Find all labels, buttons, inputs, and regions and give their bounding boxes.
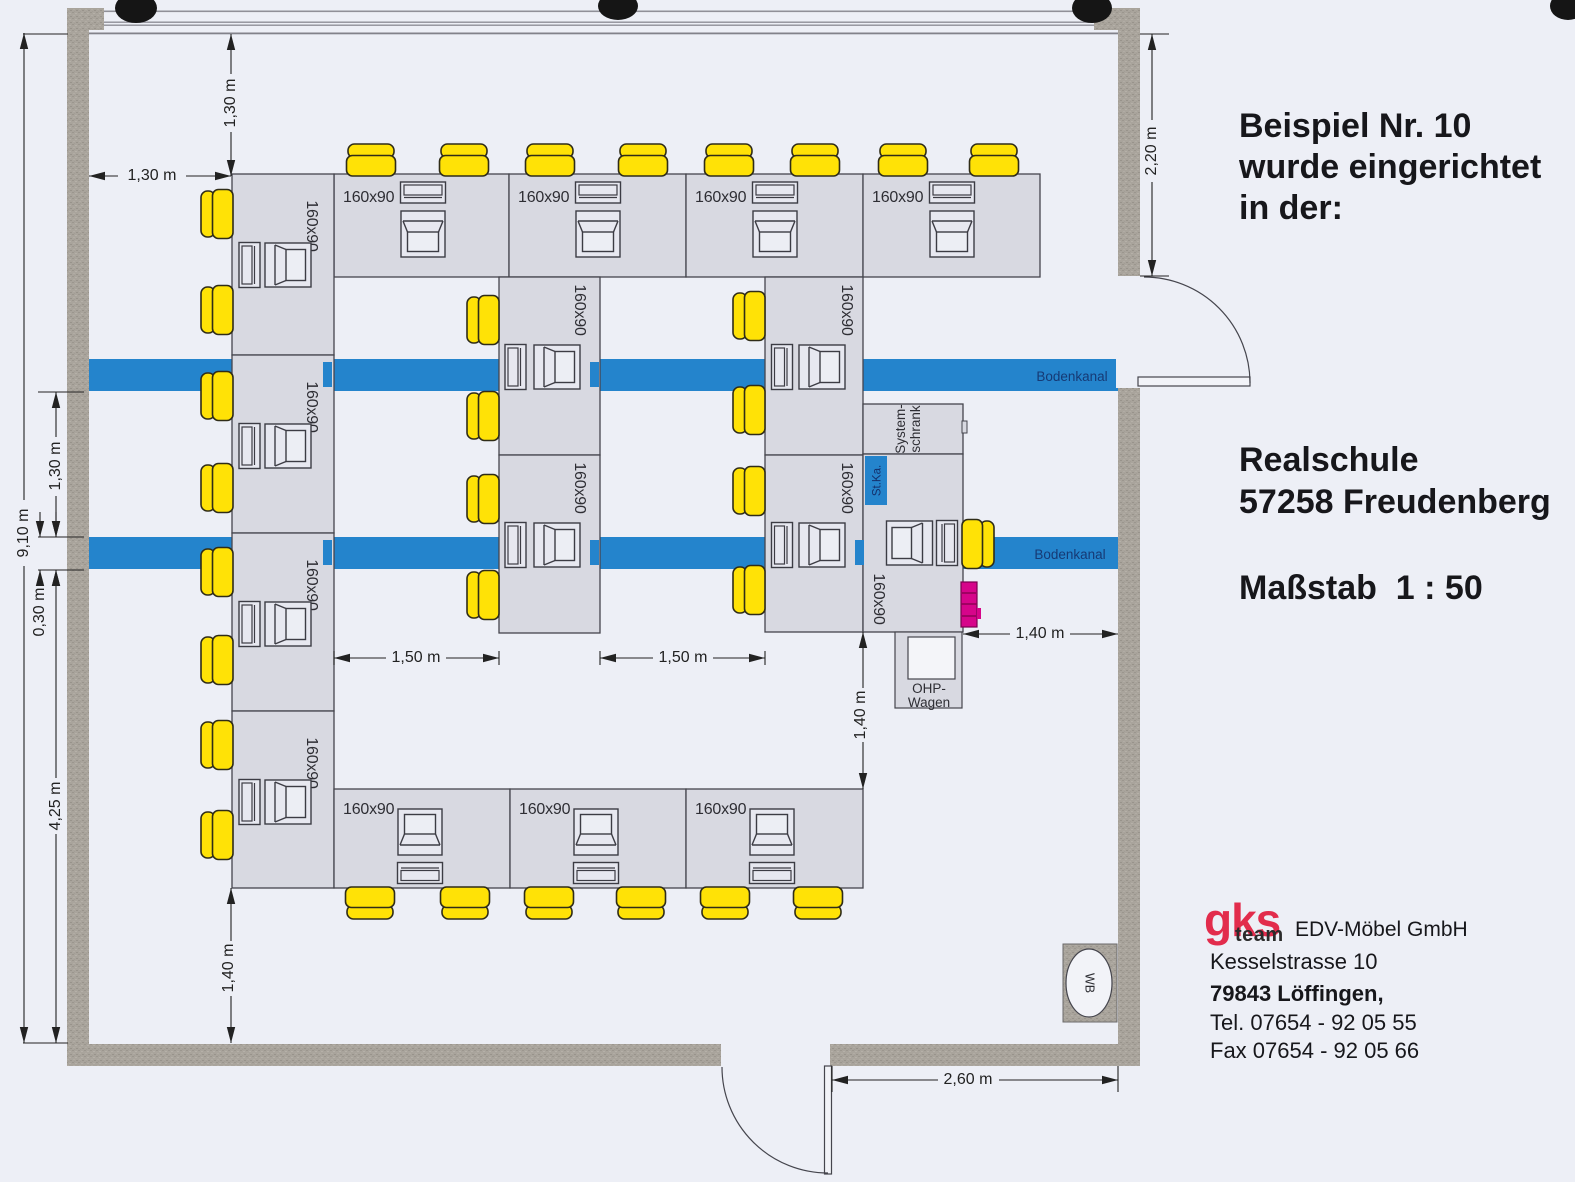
svg-text:Bodenkanal: Bodenkanal xyxy=(1036,369,1107,384)
svg-text:1,50 m: 1,50 m xyxy=(392,649,441,666)
svg-text:St.Ka.: St.Ka. xyxy=(872,465,884,496)
svg-text:1,40 m: 1,40 m xyxy=(1016,625,1065,642)
svg-text:160x90: 160x90 xyxy=(838,284,855,336)
svg-text:wurde eingerichtet: wurde eingerichtet xyxy=(1238,148,1541,186)
svg-text:in der:: in der: xyxy=(1239,189,1343,227)
svg-text:2,60 m: 2,60 m xyxy=(944,1071,993,1088)
svg-text:160x90: 160x90 xyxy=(571,462,588,514)
svg-text:160x90: 160x90 xyxy=(870,573,887,625)
svg-text:OHP-: OHP- xyxy=(912,681,946,696)
svg-text:Realschule: Realschule xyxy=(1239,441,1419,479)
svg-text:EDV-Möbel GmbH: EDV-Möbel GmbH xyxy=(1295,918,1468,941)
svg-text:1,30 m: 1,30 m xyxy=(47,442,64,491)
svg-text:160x90: 160x90 xyxy=(872,189,924,206)
svg-text:160x90: 160x90 xyxy=(695,801,747,818)
svg-text:WB: WB xyxy=(1083,973,1097,993)
svg-text:0,30 m: 0,30 m xyxy=(31,588,48,637)
svg-text:team: team xyxy=(1235,924,1284,946)
svg-text:4,25 m: 4,25 m xyxy=(47,782,64,831)
svg-text:schrank: schrank xyxy=(908,405,923,453)
svg-text:Tel. 07654 - 92 05 55: Tel. 07654 - 92 05 55 xyxy=(1210,1010,1417,1035)
svg-text:160x90: 160x90 xyxy=(838,462,855,514)
svg-text:1,50 m: 1,50 m xyxy=(659,649,708,666)
svg-text:1,30 m: 1,30 m xyxy=(128,167,177,184)
svg-text:System-: System- xyxy=(893,404,908,454)
svg-text:160x90: 160x90 xyxy=(519,801,571,818)
svg-text:9,10 m: 9,10 m xyxy=(15,509,32,558)
svg-text:Kesselstrasse 10: Kesselstrasse 10 xyxy=(1210,949,1378,974)
svg-text:160x90: 160x90 xyxy=(343,801,395,818)
svg-text:57258 Freudenberg: 57258 Freudenberg xyxy=(1239,483,1551,521)
svg-text:Wagen: Wagen xyxy=(908,695,950,710)
svg-text:160x90: 160x90 xyxy=(518,189,570,206)
svg-text:Beispiel Nr. 10: Beispiel Nr. 10 xyxy=(1239,107,1471,145)
svg-text:Maßstab 1 : 50: Maßstab 1 : 50 xyxy=(1239,569,1483,607)
svg-text:1,40 m: 1,40 m xyxy=(852,691,869,740)
svg-text:Fax 07654 - 92 05 66: Fax 07654 - 92 05 66 xyxy=(1210,1038,1419,1063)
svg-text:79843 Löffingen,: 79843 Löffingen, xyxy=(1210,981,1384,1006)
svg-text:Bodenkanal: Bodenkanal xyxy=(1034,547,1105,562)
svg-text:160x90: 160x90 xyxy=(571,284,588,336)
svg-text:2,20 m: 2,20 m xyxy=(1143,127,1160,176)
svg-text:1,40 m: 1,40 m xyxy=(220,944,237,993)
svg-text:1,30 m: 1,30 m xyxy=(222,79,239,128)
svg-text:160x90: 160x90 xyxy=(695,189,747,206)
svg-text:160x90: 160x90 xyxy=(343,189,395,206)
